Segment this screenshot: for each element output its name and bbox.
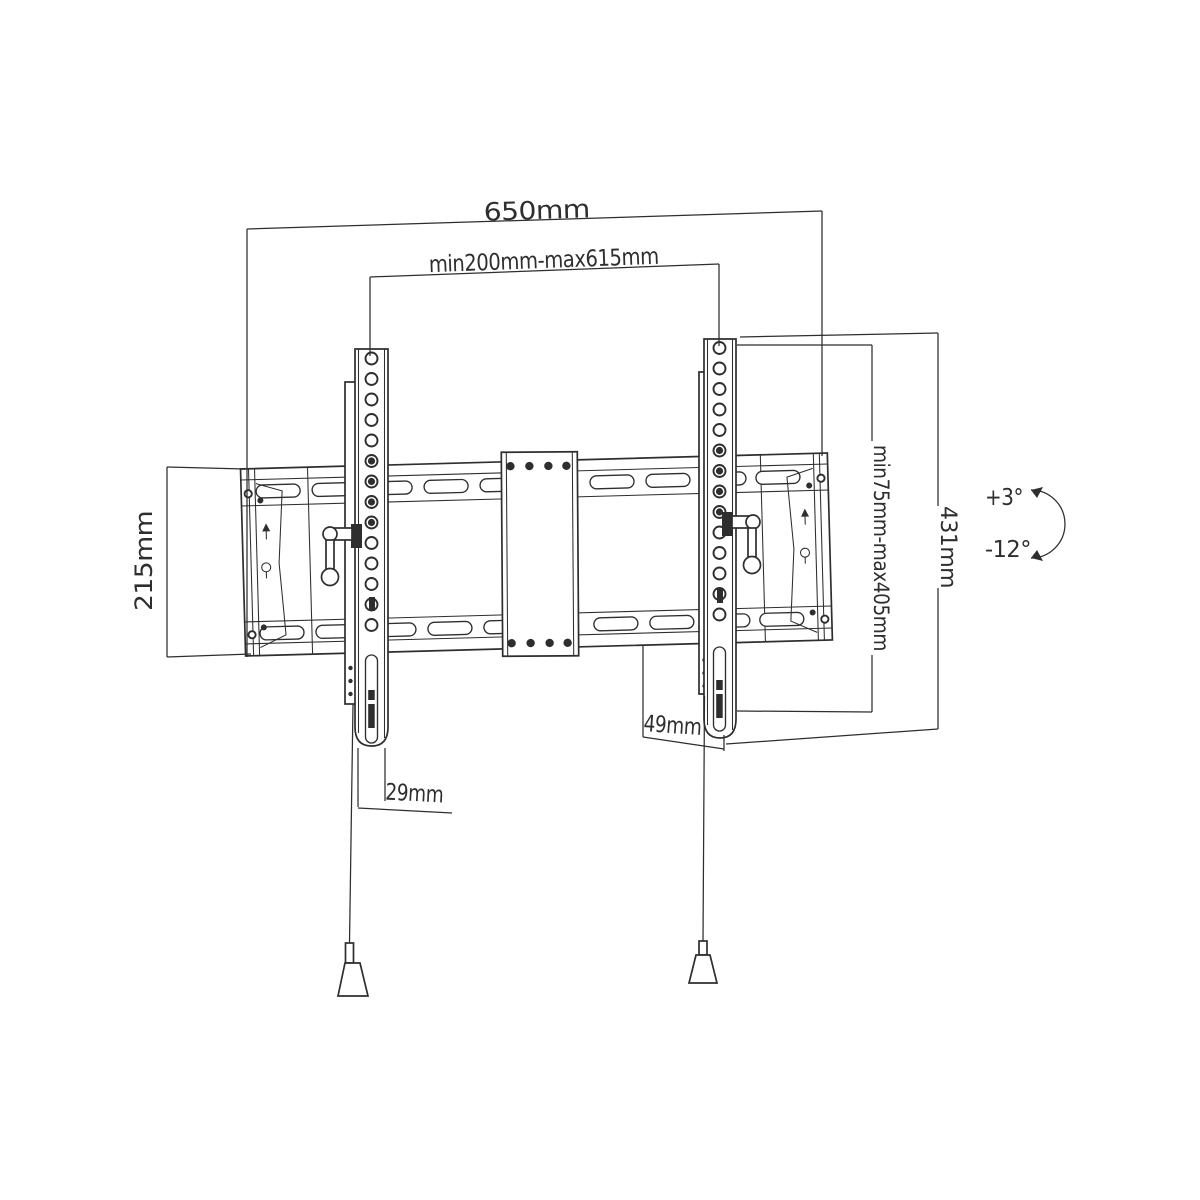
tilt-arrow-down-icon (1031, 550, 1043, 561)
tilt-down-label: -12° (985, 537, 1031, 563)
left-pull-cord (338, 704, 368, 996)
dim-215mm-label: 215mm (130, 511, 158, 611)
vesa-adapter-plate (501, 452, 578, 657)
wall-mount-technical-drawing: 650mm min200mm-max615mm 215mm 431mm min7… (0, 0, 1200, 1200)
left-tv-bracket (322, 349, 389, 746)
tilt-arc-icon (1031, 490, 1065, 558)
dimension-bracket-depth: 29mm (358, 748, 452, 813)
dimension-wall-plate-height: 215mm (130, 467, 251, 657)
dim-431mm-label: 431mm (935, 506, 960, 588)
tilt-angle-annotation: +3° -12° (985, 485, 1065, 563)
dim-vesa-width-label: min200mm-max615mm (428, 244, 659, 278)
dim-29mm-label: 29mm (385, 780, 444, 809)
right-cord-handle (689, 955, 717, 983)
left-cord-handle (338, 963, 368, 996)
dimension-vesa-width: min200mm-max615mm (370, 244, 719, 356)
dim-vesa-height-label: min75mm-max405mm (869, 445, 893, 651)
dim-650mm-label: 650mm (483, 194, 590, 226)
tilt-arrow-up-icon (1031, 487, 1043, 498)
diagram-svg: 650mm min200mm-max615mm 215mm 431mm min7… (0, 0, 1200, 1200)
right-tv-bracket (699, 339, 761, 738)
tilt-up-label: +3° (985, 485, 1023, 511)
dim-49mm-label: 49mm (643, 711, 703, 741)
